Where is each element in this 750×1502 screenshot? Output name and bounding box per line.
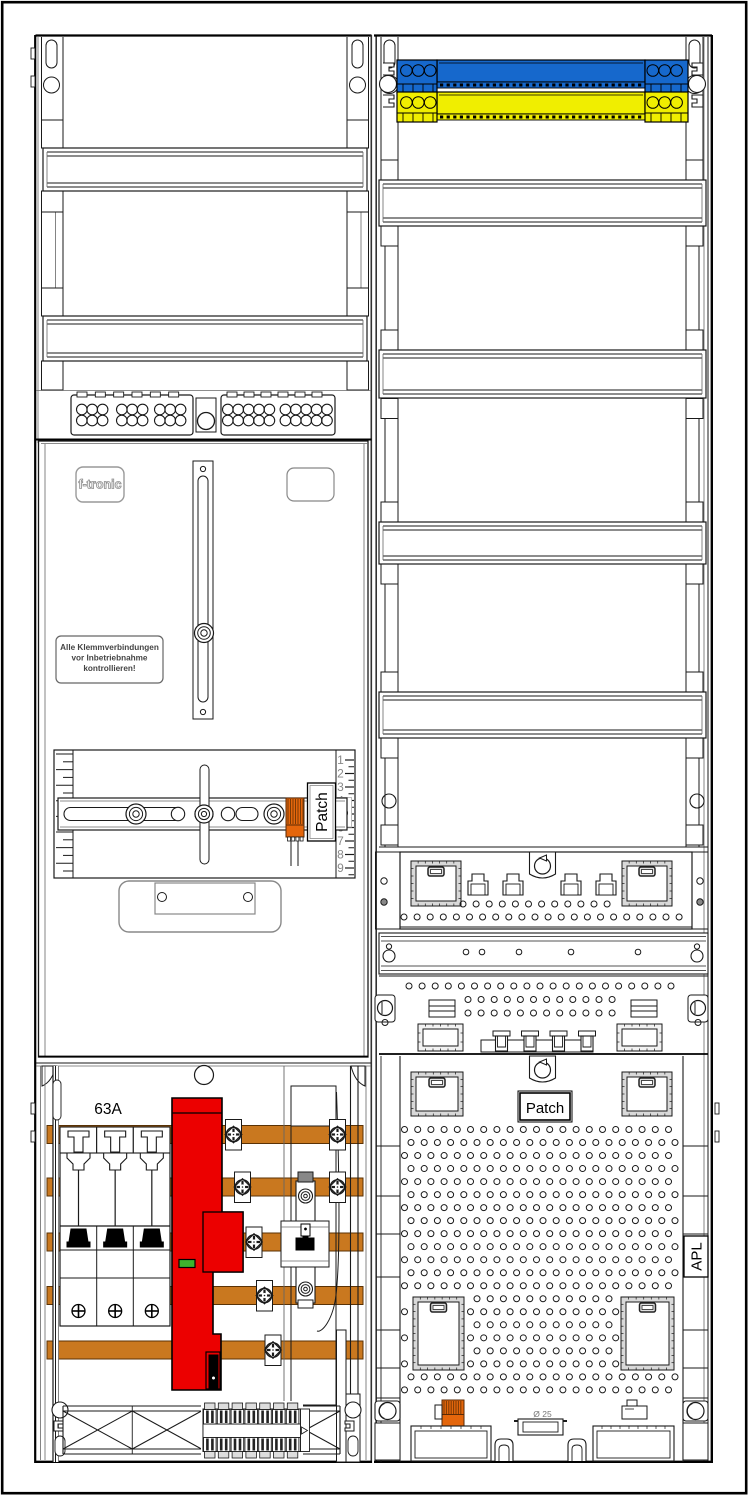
svg-text:9: 9 xyxy=(337,861,344,875)
svg-text:vor Inbetriebnahme: vor Inbetriebnahme xyxy=(72,654,148,663)
svg-text:Patch: Patch xyxy=(526,1100,564,1117)
svg-text:1: 1 xyxy=(337,753,344,767)
svg-text:Ø 25: Ø 25 xyxy=(533,1409,552,1419)
svg-text:3: 3 xyxy=(337,780,344,794)
svg-text:63A: 63A xyxy=(94,1101,122,1118)
svg-text:Alle Klemmverbindungen: Alle Klemmverbindungen xyxy=(60,643,159,652)
svg-text:Patch: Patch xyxy=(314,792,331,832)
svg-text:APL: APL xyxy=(689,1242,706,1270)
svg-text:8: 8 xyxy=(337,848,344,862)
svg-text:f-tronic: f-tronic xyxy=(78,478,121,492)
svg-text:2: 2 xyxy=(337,767,344,781)
svg-text:kontrollieren!: kontrollieren! xyxy=(83,664,135,673)
svg-text:7: 7 xyxy=(337,834,344,848)
